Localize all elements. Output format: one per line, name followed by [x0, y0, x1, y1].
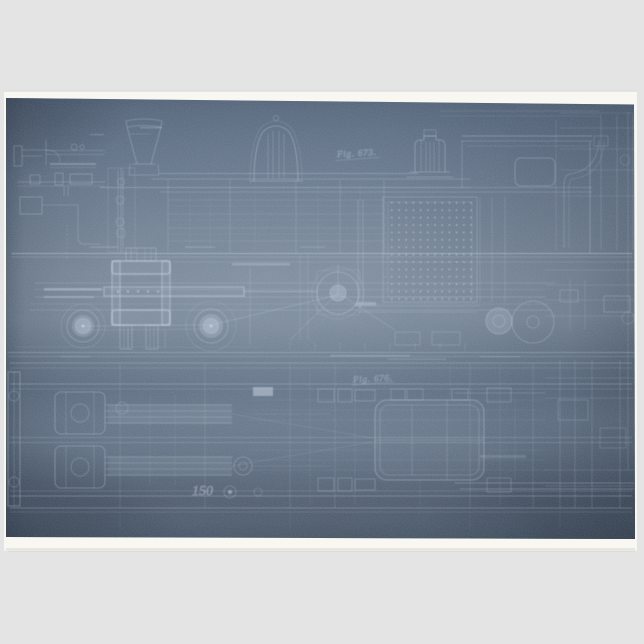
svg-text:Fig. 673.: Fig. 673.: [336, 147, 377, 159]
svg-text:150: 150: [192, 484, 213, 499]
